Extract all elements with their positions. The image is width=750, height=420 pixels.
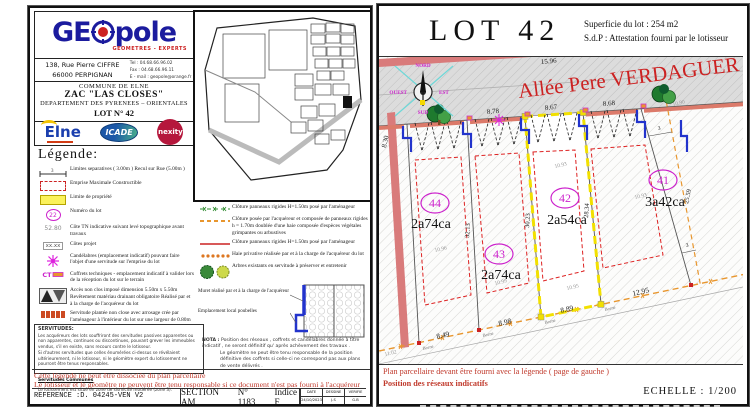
sdp-text: S.d.P : Attestation fourni par le lotiss… <box>584 32 728 46</box>
lot-number-title: LOT N° 42 <box>35 108 193 118</box>
plan-footer-note1: Plan parcellaire devant être fourni avec… <box>383 366 743 377</box>
m-front-42: 8.67 <box>544 103 557 112</box>
project-elevation-icon: xx.xx <box>36 241 70 250</box>
legend-item-numero-lot: 22 Numéro du lot <box>36 208 194 221</box>
verifie-header: VERIFIE <box>344 389 366 397</box>
lot42-number: 42 <box>559 191 571 205</box>
plan-footer: Plan parcellaire devant être fourni avec… <box>379 364 743 401</box>
lot41-area: 3a42ca <box>645 195 685 210</box>
m-street: 15.96 <box>540 57 557 66</box>
legend-heading: Légende: <box>38 147 98 163</box>
lot-number-icon: 22 <box>36 208 70 221</box>
emprise-constructible-icon <box>36 180 70 191</box>
lot-title: LOT 42 <box>429 14 560 48</box>
compass-south-label: SUD <box>418 110 429 116</box>
muret-diagram-row: Muret réalisé par et à la charge de l'ac… <box>198 283 368 345</box>
parcel-plan: NORD EST SUD OUEST Allée Pere VERDAGUER … <box>379 56 743 364</box>
legend-item-limite-propriete: Limite de propriété <box>36 194 194 205</box>
m-front-43: 8.78 <box>486 107 499 116</box>
elne-logo: Elne <box>45 125 81 140</box>
hedge-dots-icon <box>198 251 232 260</box>
legend-item-cote-tn: 52.80 Côte TN indicative suivant levé to… <box>36 224 194 238</box>
logo-subtitle: GEOMETRES - EXPERTS <box>113 46 187 52</box>
lot42-area: 2a54ca <box>547 213 587 228</box>
plan-header: LOT 42 Superficie du lot : 254 m2 S.d.P … <box>379 6 743 57</box>
servitudes-box: SERVITUDES: Les acquéreurs des lots souf… <box>34 324 204 374</box>
date-header: DATE <box>300 389 322 397</box>
commune-title: COMMUNE DE ELNE <box>35 83 193 90</box>
property-limit-icon <box>36 194 70 205</box>
parcel-plan-svg: NORD EST SUD OUEST Allée Pere VERDAGUER … <box>379 56 743 364</box>
verifie-value: G.B <box>344 397 366 404</box>
red-fence-icon <box>198 239 232 248</box>
legend-item-coffrets: CT Coffrets techniques - emplacement ind… <box>36 271 194 285</box>
disclaimer-line1: Cette légende ne peut être dissociée du … <box>34 371 368 380</box>
elne-underline <box>47 141 73 143</box>
trees-icon <box>198 263 232 280</box>
target-icon <box>91 20 115 44</box>
next-page-artifact <box>420 405 720 407</box>
m-side-42-41: 28.34 <box>583 202 591 218</box>
lot42-location-marker <box>343 96 352 108</box>
legend-item-cloture-acquereur: Clôture posée par l'acquéreur et composé… <box>198 216 368 236</box>
coffret-technique-icon: CT <box>36 271 70 279</box>
address-line2: 66000 PERPIGNAN <box>35 71 130 81</box>
zac-title: ZAC "LAS CLOSES" <box>35 90 193 100</box>
legend-left-column: 3 Limites separatives ( 3.00m ) Recul su… <box>36 166 194 327</box>
date-table: DATE DESSINE VERIFIE 24/10/2023 J.S G.B <box>300 389 366 404</box>
nota-label: NOTA : <box>202 338 220 343</box>
orange-fence-icon <box>198 216 232 225</box>
geopole-logo: GE pole GEOMETRES - EXPERTS <box>34 11 194 59</box>
overview-map-svg <box>195 12 366 196</box>
scale-label: ECHELLE : 1/200 <box>643 386 737 397</box>
nota-p2: Le géomètre ne peut être tenu responsabl… <box>220 351 366 370</box>
legend-item-cloture-amenageur: Clôture panneaux rigides H=1.50m posé pa… <box>198 204 368 213</box>
overview-map <box>193 10 372 202</box>
compass-north-label: NORD <box>415 63 431 69</box>
reference-cell: REFERENCE :D. 04245-VEN V2 <box>32 389 181 404</box>
section-cell: SECTION AM N° 1183 Indice F <box>181 389 300 404</box>
tn-elevation-icon: 52.80 <box>36 224 70 232</box>
legend-item-haie-privative: Haie privative réalisée par et à la char… <box>198 251 368 260</box>
lot43-number: 43 <box>493 247 505 261</box>
servitudes-p1: Les acquéreurs des lots souffriront des … <box>38 333 200 349</box>
dessine-header: DESSINE <box>322 389 344 397</box>
numero-label: N° 1183 <box>238 387 263 407</box>
elne-arc-icon <box>41 120 57 131</box>
section-label: SECTION AM <box>181 387 226 407</box>
nota-p1: Position des réseaux , coffrets et candé… <box>202 338 359 349</box>
title-block: COMMUNE DE ELNE ZAC "LAS CLOSES" DEPARTE… <box>34 81 194 122</box>
green-fence-icon <box>198 204 232 213</box>
m-side-44-43: 32.13 <box>464 223 472 238</box>
logo-text-ge: GE <box>52 19 91 46</box>
tel: Tel : 04.68.66.96.02 <box>130 61 193 68</box>
servitudes-p2: Si d'autres servitudes que celles énumér… <box>38 350 200 366</box>
nexity-logo: nexity <box>157 119 183 145</box>
nota-block: NOTA : Position des réseaux , coffrets e… <box>202 338 366 370</box>
lot41-number: 41 <box>657 173 669 187</box>
muret-diagram <box>290 283 368 345</box>
muret-label: Muret réalisé par et à la charge de l'ac… <box>198 289 290 296</box>
fax: Fax : 04.68.66.96.11 <box>130 68 193 75</box>
legend-item-emprise: Emprise Maximale Constructible <box>36 180 194 191</box>
separative-limit-icon: 3 <box>36 166 70 177</box>
legend-item-cotes-projet: xx.xx Côtes projet <box>36 241 194 250</box>
legend-page: GE pole GEOMETRES - EXPERTS 138, Rue Pie… <box>28 6 372 406</box>
acces-non-clos-icon <box>36 287 70 304</box>
compass-east-label: EST <box>439 90 449 96</box>
document-sheet: GE pole GEOMETRES - EXPERTS 138, Rue Pie… <box>0 0 750 420</box>
svg-text:3: 3 <box>51 169 54 174</box>
servitudes-heading: SERVITUDES: <box>38 327 200 332</box>
legend-item-cloture-rigide: Clôture panneaux rigides H=1.50m posé pa… <box>198 239 368 248</box>
legend-item-limites: 3 Limites separatives ( 3.00m ) Recul su… <box>36 166 194 177</box>
m-side-43-42: 30.23 <box>524 213 532 228</box>
partner-logos: Elne ICADE nexity <box>34 119 194 146</box>
compass-west-label: OUEST <box>389 90 407 96</box>
poubelles-label: Emplacement local poubelles <box>198 309 290 314</box>
servitude-plantee-icon <box>36 310 70 318</box>
dessine-value: J.S <box>322 397 344 404</box>
superficie-text: Superficie du lot : 254 m2 <box>584 18 728 32</box>
address-line1: 138, Rue Pierre CIFFRE <box>35 61 130 71</box>
candelabre-icon <box>36 253 70 268</box>
lot44-area: 2a74ca <box>411 217 451 232</box>
m-front-41: 8.68 <box>602 99 615 108</box>
lot-info: Superficie du lot : 254 m2 S.d.P : Attes… <box>584 18 728 45</box>
legend-right-column: Clôture panneaux rigides H=1.50m posé pa… <box>198 204 368 345</box>
legend-item-arbres: Arbres existants en servitude à préserve… <box>198 263 368 280</box>
legend-item-candelabres: Candélabres (emplacement indicatif) pouv… <box>36 253 194 268</box>
address-block: 138, Rue Pierre CIFFRE 66000 PERPIGNAN T… <box>34 57 194 82</box>
lot44-number: 44 <box>429 196 441 210</box>
date-value: 24/10/2023 <box>300 397 322 404</box>
title-block-footer: REFERENCE :D. 04245-VEN V2 SECTION AM N°… <box>32 388 366 404</box>
legend-item-acces: Accès non clos imposé dimension 5.50m x … <box>36 287 194 307</box>
logo-text-pole: pole <box>115 19 176 46</box>
legend-item-servitude-plantee: Servitude plantée non close avec arrosag… <box>36 310 194 324</box>
icade-logo: ICADE <box>100 123 138 142</box>
departement-title: DEPARTEMENT DES PYRENEES – ORIENTALES <box>35 100 193 107</box>
indice-label: Indice F <box>274 387 299 407</box>
plan-page: LOT 42 Superficie du lot : 254 m2 S.d.P … <box>377 4 749 406</box>
